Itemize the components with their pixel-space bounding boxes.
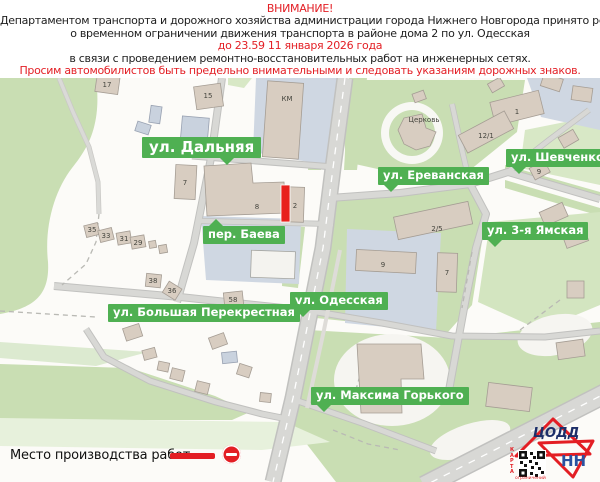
notice-flyer: ВНИМАНИЕ! Департаментом транспорта и дор… [0,0,600,482]
logo-subtitle: НН [561,452,586,470]
label-pointer-icon [384,185,398,192]
label-pointer-icon [317,405,331,412]
label-pointer-icon [220,158,234,165]
street-label-perekrestnaya: ул. Большая Перекрестная [108,304,300,322]
logo-qr-side-text: КАРТА [510,448,517,476]
building-label-2-5: 2/5 [431,225,442,233]
street-label-baeva: пер. Баева [203,226,285,244]
logo-title: ЦОДД [533,426,579,441]
street-label-erevanskaya: ул. Ереванская [378,167,489,185]
notice-deadline: до 23.59 11 января 2026 года [0,40,600,52]
street-label-shevchenko: ул. Шевченко [506,149,600,167]
street-label-gorkogo: ул. Максима Горького [311,387,469,405]
legend: Место производства работ - [0,440,380,482]
building-label-1: 1 [515,108,519,116]
qr-code-icon [518,450,546,478]
building-label-12-1: 12/1 [478,132,494,140]
building-label-9-right: 9 [537,168,541,176]
work-site-marker [281,185,290,222]
building-label-33: 33 [102,232,111,240]
street-label-dalnyaya: ул. Дальняя [142,137,261,158]
building-label-31: 31 [120,235,129,243]
building-label-church: Церковь [409,116,440,124]
building-label-58: 58 [229,296,238,304]
notice-text-1: Департаментом транспорта и дорожного хоз… [0,15,600,27]
building-label-9-center: 9 [381,261,385,269]
logo-qr-bottom-text: ограничений [515,476,546,481]
label-pointer-icon [488,240,502,247]
label-pointer-icon [512,167,526,174]
codd-logo: ЦОДД НН КАРТА ограничений [503,415,600,482]
building-label-7-left: 7 [183,179,187,187]
notice-warning: Просим автомобилистов быть предельно вни… [0,65,600,77]
building-label-35: 35 [88,226,97,234]
building-label-36: 36 [168,287,177,295]
building-label-15: 15 [204,92,213,100]
street-label-odesskaya: ул. Одесская [290,292,388,310]
building-label-8: 8 [255,203,259,211]
building-label-2: 2 [293,202,297,210]
no-entry-icon [222,445,241,464]
building-label-38: 38 [149,277,158,285]
street-label-yamskaya: ул. 3-я Ямская [482,222,588,240]
work-site-line-sample [170,453,215,459]
building-label-29: 29 [134,239,143,247]
building-label-7-right: 7 [445,269,449,277]
notice-header: ВНИМАНИЕ! Департаментом транспорта и дор… [0,0,600,81]
label-pointer-icon [209,219,223,226]
building-label-km: КМ [281,95,292,103]
building-label-17: 17 [103,81,112,89]
